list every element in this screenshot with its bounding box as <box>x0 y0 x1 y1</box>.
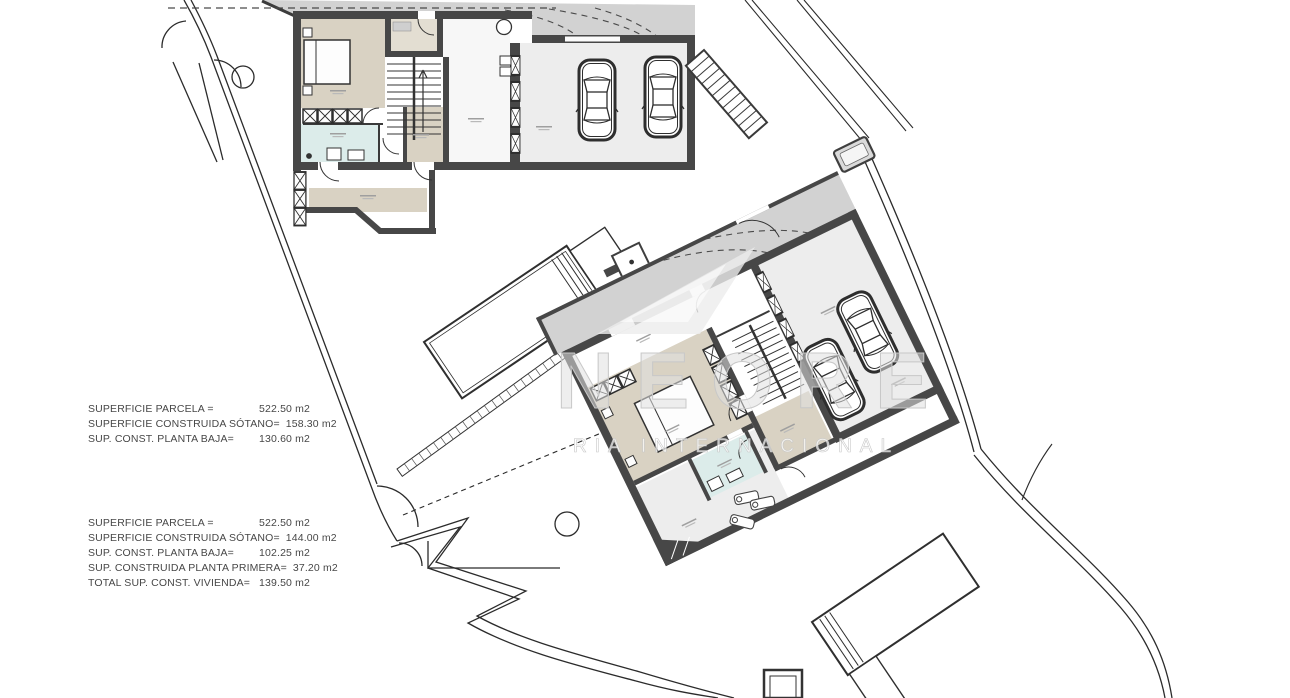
area-row: SUPERFICIE CONSTRUIDA SÓTANO= 158.30 m2 <box>88 417 310 432</box>
area-row: SUP. CONST. PLANTA BAJA= 102.25 m2 <box>88 546 310 561</box>
area-label: SUPERFICIE PARCELA = <box>88 402 214 417</box>
area-value: 139.50 m2 <box>253 576 310 591</box>
area-label: TOTAL SUP. CONST. VIVIENDA= <box>88 576 250 591</box>
area-value: 102.25 m2 <box>253 546 310 561</box>
area-row: SUP. CONST. PLANTA BAJA= 130.60 m2 <box>88 432 310 447</box>
tree-icon <box>555 512 579 536</box>
site-plan-drawing: NEORE RIA INTERNACIONAL <box>0 0 1290 698</box>
gate-arc <box>162 21 186 48</box>
area-row: SUPERFICIE PARCELA = 522.50 m2 <box>88 402 310 417</box>
watermark-brand-text: NEORE <box>556 336 951 425</box>
area-label: SUPERFICIE CONSTRUIDA SÓTANO= <box>88 531 280 546</box>
villa-1-plan <box>168 0 695 231</box>
area-row: SUPERFICIE CONSTRUIDA SÓTANO= 144.00 m2 <box>88 531 310 546</box>
entry-kiosk <box>833 136 875 172</box>
ramp-lines <box>745 0 913 141</box>
gate-arc <box>399 543 422 566</box>
area-row: TOTAL SUP. CONST. VIVIENDA= 139.50 m2 <box>88 576 310 591</box>
car-icon <box>576 60 618 140</box>
area-label: SUPERFICIE CONSTRUIDA SÓTANO= <box>88 417 280 432</box>
utility-box <box>764 670 802 698</box>
gate-arc <box>377 486 418 527</box>
watermark-tagline-text: RIA INTERNACIONAL <box>573 436 899 457</box>
area-label: SUP. CONST. PLANTA BAJA= <box>88 432 234 447</box>
area-value: 37.20 m2 <box>287 561 338 576</box>
area-label: SUP. CONSTRUIDA PLANTA PRIMERA= <box>88 561 287 576</box>
area-value: 158.30 m2 <box>280 417 337 432</box>
area-summary-table-1: SUPERFICIE PARCELA = 522.50 m2 SUPERFICI… <box>88 402 310 447</box>
pool-2 <box>812 534 1008 698</box>
area-summary-table-2: SUPERFICIE PARCELA = 522.50 m2 SUPERFICI… <box>88 516 310 591</box>
car-icon <box>642 57 684 137</box>
area-value: 130.60 m2 <box>253 432 310 447</box>
room-lavadero <box>443 19 510 162</box>
external-stair <box>686 50 767 138</box>
area-label: SUP. CONST. PLANTA BAJA= <box>88 546 234 561</box>
area-row: SUP. CONSTRUIDA PLANTA PRIMERA= 37.20 m2 <box>88 561 310 576</box>
area-value: 144.00 m2 <box>280 531 337 546</box>
area-row: SUPERFICIE PARCELA = 522.50 m2 <box>88 516 310 531</box>
area-value: 522.50 m2 <box>253 516 310 531</box>
floor-plan-page: NEORE RIA INTERNACIONAL SUPERFICIE PARCE… <box>0 0 1290 698</box>
area-label: SUPERFICIE PARCELA = <box>88 516 214 531</box>
tree-icon <box>232 66 254 88</box>
area-value: 522.50 m2 <box>253 402 310 417</box>
